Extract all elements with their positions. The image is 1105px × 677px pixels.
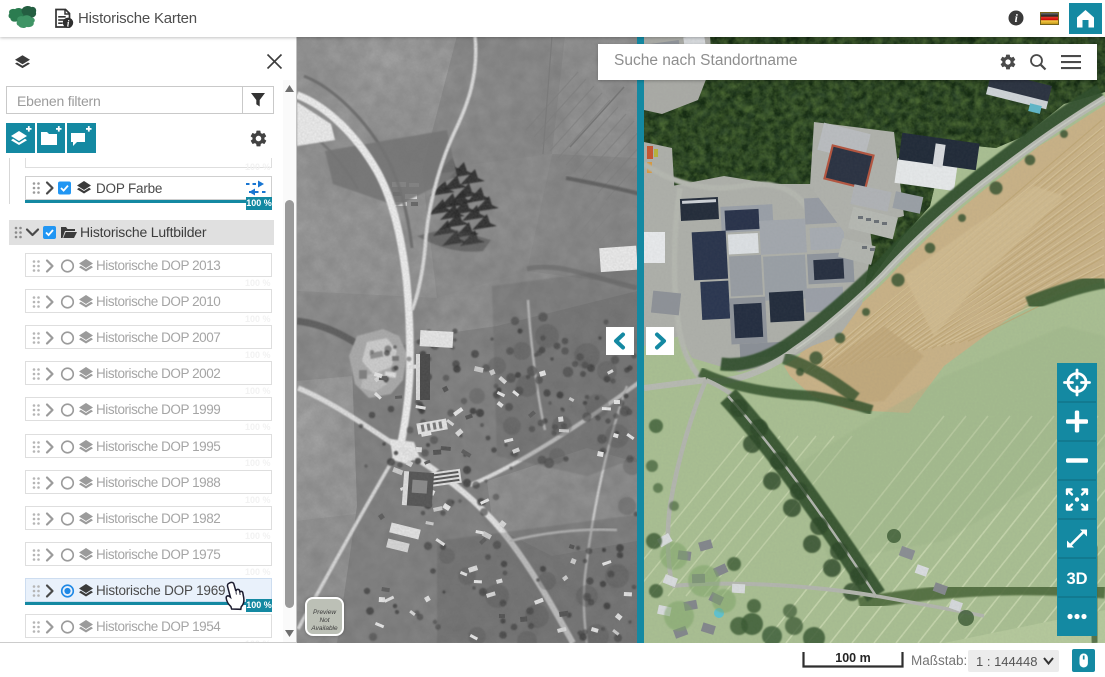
svg-text:3D: 3D — [1066, 570, 1087, 588]
